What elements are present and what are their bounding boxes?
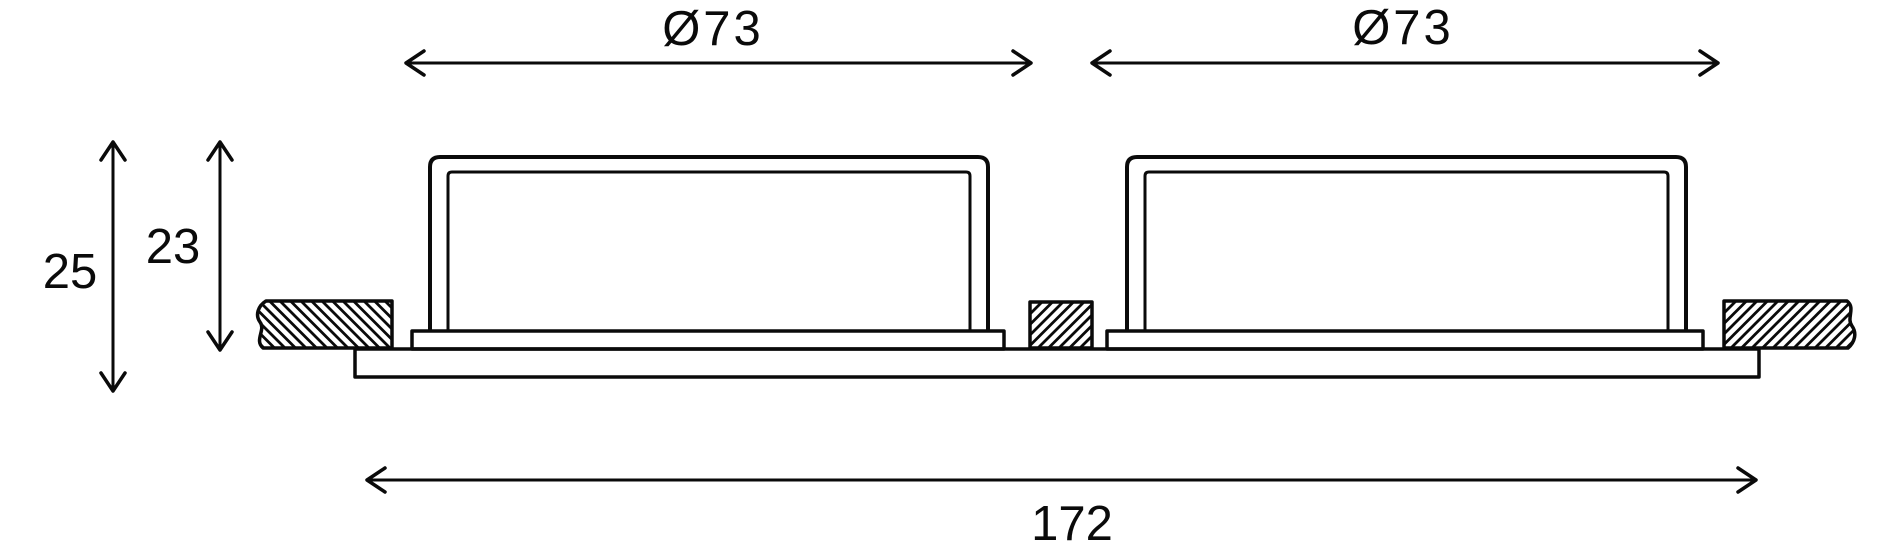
- base-plate: [355, 349, 1759, 377]
- trim-plate-right: [1107, 331, 1703, 349]
- dimension-label-overall-width: 172: [1031, 497, 1113, 551]
- ceiling-hatch-left: [258, 301, 392, 348]
- dimension-label-overall-height: 25: [43, 245, 98, 299]
- housing-left-outline: [430, 157, 988, 331]
- fixture-cross-section: [258, 157, 1855, 377]
- housing-left-inner-wall: [448, 172, 970, 331]
- dimension-recess-height: 23: [146, 142, 232, 350]
- dimension-diameter-right: Ø73: [1092, 1, 1718, 75]
- dimension-diameter-left: Ø73: [406, 2, 1031, 75]
- dimension-label-recess-height: 23: [146, 220, 201, 274]
- dimension-label-diameter-right: Ø73: [1352, 1, 1454, 55]
- dimension-overall-height: 25: [43, 142, 125, 391]
- housing-right-inner-wall: [1145, 172, 1668, 331]
- technical-drawing: Ø73 Ø73 25 23 172: [0, 0, 1897, 556]
- drawing-canvas: Ø73 Ø73 25 23 172: [0, 0, 1897, 556]
- trim-plate-left: [412, 331, 1004, 349]
- dimension-label-diameter-left: Ø73: [662, 2, 764, 56]
- ceiling-hatch-middle: [1030, 302, 1092, 348]
- ceiling-hatch-right: [1724, 301, 1855, 348]
- dimension-overall-width: 172: [367, 468, 1756, 551]
- housing-right-outline: [1127, 157, 1686, 331]
